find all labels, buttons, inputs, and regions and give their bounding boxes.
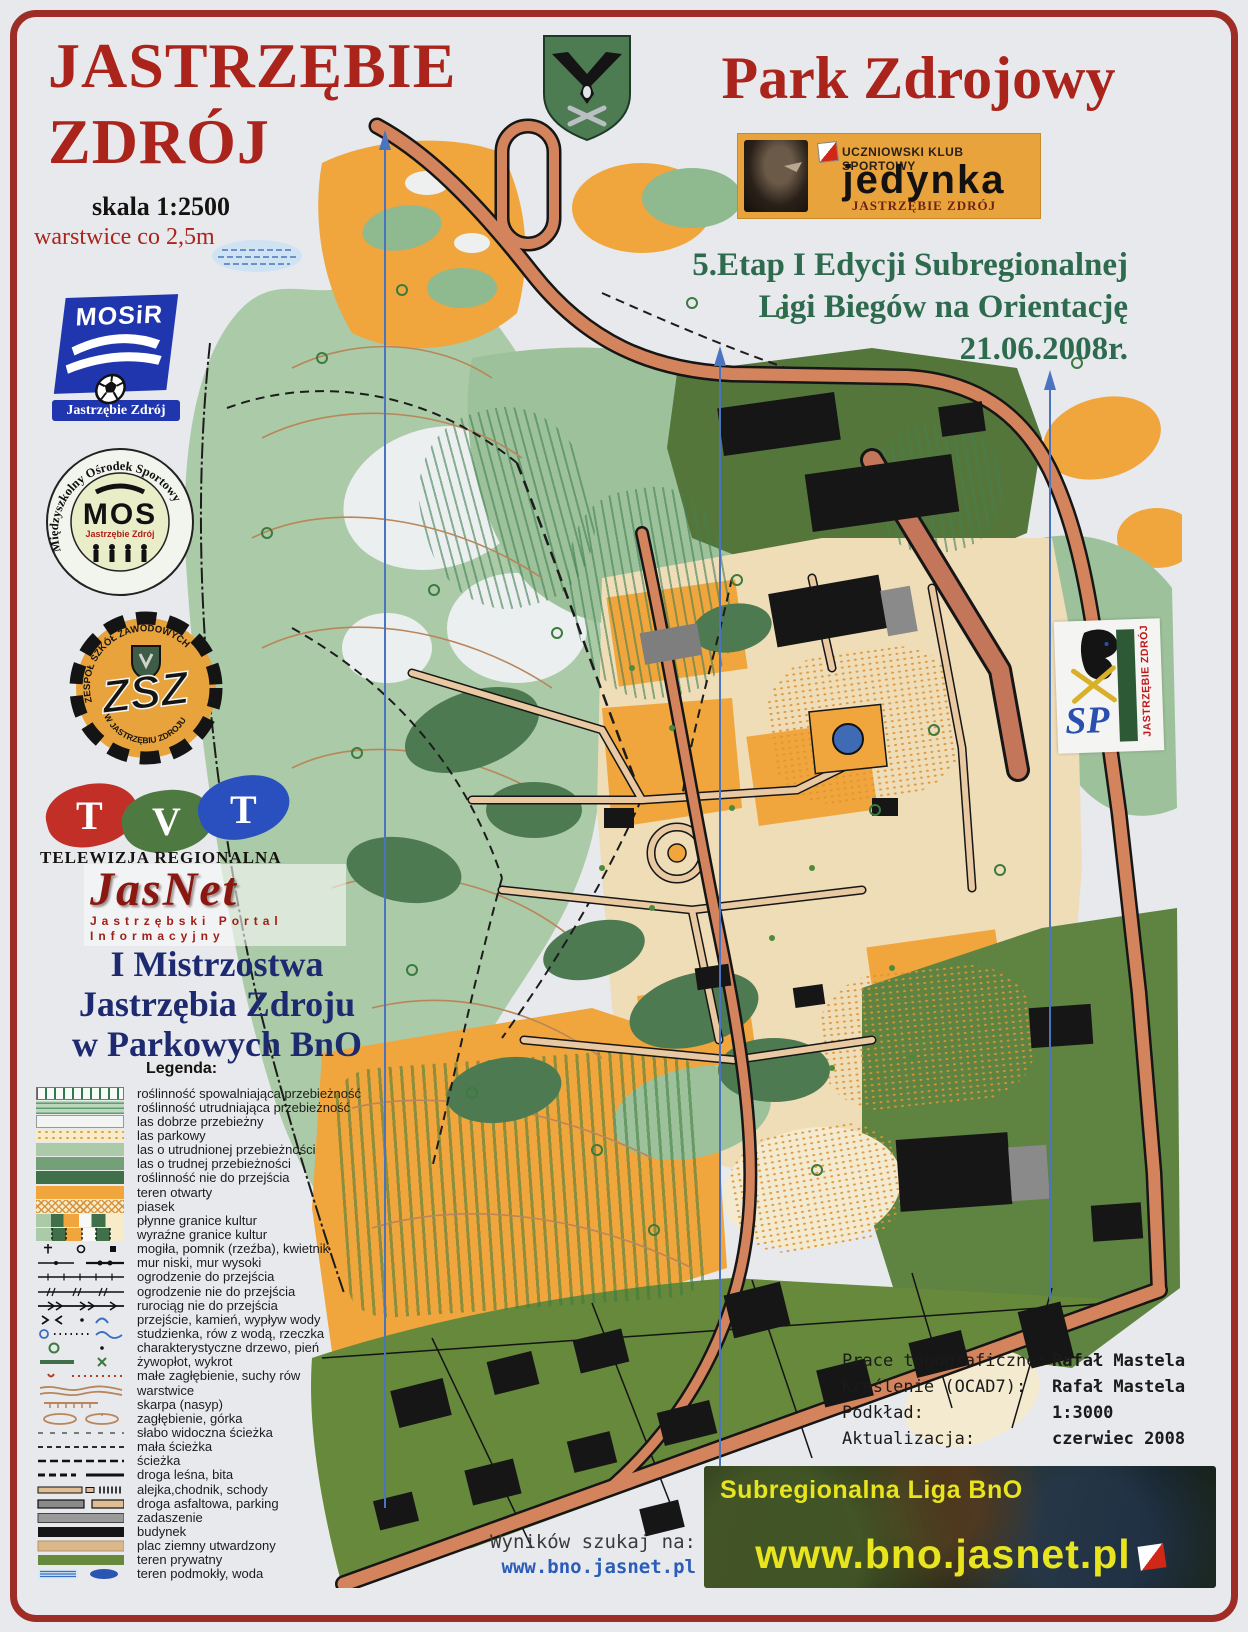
legend-label: las o utrudnionej przebieżności	[137, 1143, 316, 1156]
legend-label: ogrodzenie do przejścia	[137, 1270, 274, 1283]
city-crest-shield-icon	[538, 32, 636, 144]
legend-label: roślinność spowalniająca przebieżność	[137, 1087, 361, 1100]
legend-swatch-runnable-forest	[36, 1115, 124, 1128]
results-note: Wyników szukaj na: www.bno.jasnet.pl	[440, 1530, 696, 1580]
legend-label: małe zagłębienie, suchy rów	[137, 1369, 300, 1382]
legend-swatch-contours	[36, 1384, 124, 1397]
tvt-letter: V	[152, 798, 181, 845]
jasnet-caption-line: Jastrzębski Portal	[90, 914, 340, 929]
legend-label: alejka,chodnik, schody	[137, 1483, 268, 1496]
legend-label: zagłębienie, górka	[137, 1412, 243, 1425]
legend-label: wyraźne granice kultur	[137, 1228, 267, 1241]
credit-value: czerwiec 2008	[1052, 1426, 1185, 1452]
legend-label: mogiła, pomnik (rzeźba), kwietnik	[137, 1242, 329, 1255]
zsz-logo: ZESPÓŁ SZKÓŁ ZAWODOWYCH W JASTRZĘBIU ZDR…	[62, 604, 230, 777]
legend-swatch-path	[36, 1454, 124, 1467]
credit-row: Prace topograficzne:Rafał Mastela	[842, 1348, 1185, 1374]
credit-value: Rafał Mastela	[1052, 1348, 1185, 1374]
legend-swatch-grave-monument-flowerbed	[36, 1242, 124, 1255]
event-line: 21.06.2008r.	[600, 328, 1128, 370]
jasnet-logo: JasNet Jastrzębski Portal Informacyjny	[84, 864, 346, 946]
legend-swatch-asphalt-parking	[36, 1497, 124, 1510]
league-banner: Subregionalna Liga BnO www.bno.jasnet.pl	[704, 1466, 1216, 1588]
legend-label: las o trudnej przebieżności	[137, 1157, 291, 1170]
scanned-orienteering-map-page: JASTRZĘBIE ZDRÓJ skala 1:2500 warstwice …	[0, 0, 1248, 1632]
mosir-emblem: MOSiR	[54, 294, 178, 394]
tvt-letter: T	[76, 792, 103, 839]
mos-logo: Międzyszkolny Ośrodek Sportowy MOS Jastr…	[44, 446, 196, 603]
legend-label: skarpa (nasyp)	[137, 1398, 223, 1411]
legend-label: plac ziemny utwardzony	[137, 1539, 276, 1552]
mos-name: MOS	[83, 498, 157, 531]
hawk-photo	[744, 140, 808, 212]
legend-label: płynne granice kultur	[137, 1214, 257, 1227]
event-line: Ligi Biegów na Orientację	[600, 286, 1128, 328]
event-line: 5.Etap I Edycji Subregionalnej	[600, 244, 1128, 286]
legend-label: piasek	[137, 1200, 175, 1213]
legend-swatch-veg-slow	[36, 1087, 124, 1100]
legend-swatch-sand	[36, 1200, 124, 1213]
sponsor-jedynka-logo: UCZNIOWSKI KLUB SPORTOWY jedynka JASTRZĘ…	[738, 134, 1040, 218]
legend-swatch-tree-stump	[36, 1341, 124, 1354]
credit-label: Aktualizacja:	[842, 1426, 1052, 1452]
credit-label: Prace topograficzne:	[842, 1348, 1052, 1374]
legend-swatch-marsh-water	[36, 1567, 124, 1580]
legend-swatch-difficult-forest	[36, 1157, 124, 1170]
legend-swatch-depression-hill	[36, 1412, 124, 1425]
marsh-lines	[218, 250, 296, 264]
event-title: 5.Etap I Edycji Subregionalnej Ligi Bieg…	[600, 244, 1128, 370]
legend-swatch-private-terrain	[36, 1553, 124, 1566]
map-scale-label: skala 1:2500	[92, 192, 230, 222]
legend-label: roślinność utrudniająca przebieżność	[137, 1101, 350, 1114]
legend-swatch-faint-path	[36, 1426, 124, 1439]
map-title-left: JASTRZĘBIE ZDRÓJ	[48, 28, 456, 180]
legend-label: słabo widoczna ścieżka	[137, 1426, 273, 1439]
legend-swatch-depression-dry-ditch	[36, 1369, 124, 1382]
legend-label: warstwice	[137, 1384, 194, 1397]
championship-title: I Mistrzostwa Jastrzębia Zdroju w Parkow…	[26, 944, 408, 1064]
legend-label: zadaszenie	[137, 1511, 203, 1524]
sp1-logo: SP JASTRZĘBIE ZDRÓJ	[1054, 618, 1165, 754]
sponsor-club-city: JASTRZĘBIE ZDRÓJ	[814, 198, 1034, 214]
legend-swatch-roofing	[36, 1511, 124, 1524]
legend-label: ścieżka	[137, 1454, 180, 1467]
sp1-sp-text: SP	[1064, 698, 1110, 744]
mos-city: Jastrzębie Zdrój	[85, 529, 154, 539]
sponsor-club-name: jedynka	[814, 158, 1034, 203]
legend-label: charakterystyczne drzewo, pień	[137, 1341, 319, 1354]
jasnet-name: JasNet	[90, 866, 340, 914]
banner-url-text: www.bno.jasnet.pl	[755, 1531, 1130, 1577]
credit-value: Rafał Mastela	[1052, 1374, 1185, 1400]
legend-swatch-park-forest	[36, 1129, 124, 1142]
mosir-logo: MOSiR Jastrzębie Zdrój	[52, 296, 182, 421]
legend-label: droga leśna, bita	[137, 1468, 233, 1481]
legend-swatch-veg-hindering	[36, 1101, 124, 1114]
legend-swatch-fence-passable	[36, 1270, 124, 1283]
legend-swatch-crossing-stone-spring	[36, 1313, 124, 1326]
zsz-name: ZSZ	[97, 661, 193, 724]
legend-label: droga asfaltowa, parking	[137, 1497, 279, 1510]
legend-swatch-small-path	[36, 1440, 124, 1453]
results-label: Wyników szukaj na:	[440, 1530, 696, 1555]
legend-swatch-pipeline	[36, 1299, 124, 1312]
legend-label: przejście, kamień, wypływ wody	[137, 1313, 321, 1326]
title-line: ZDRÓJ	[48, 104, 456, 180]
city-crest	[538, 32, 636, 149]
legend-label: roślinność nie do przejścia	[137, 1171, 289, 1184]
legend-swatch-open-terrain	[36, 1186, 124, 1199]
legend-swatch-well-ditch-stream	[36, 1327, 124, 1340]
results-url: www.bno.jasnet.pl	[440, 1555, 696, 1580]
title-line: JASTRZĘBIE	[48, 28, 456, 104]
credit-row: Aktualizacja:czerwiec 2008	[842, 1426, 1185, 1452]
legend-label: budynek	[137, 1525, 186, 1538]
orienteering-flag-icon	[1137, 1543, 1166, 1570]
map-credits: Prace topograficzne:Rafał Mastela Kreśle…	[842, 1348, 1185, 1452]
zsz-emblem: ZESPÓŁ SZKÓŁ ZAWODOWYCH W JASTRZĘBIU ZDR…	[62, 604, 230, 772]
legend-swatch-alley-sidewalk-stairs	[36, 1483, 124, 1496]
credit-row: Podkład:1:3000	[842, 1400, 1185, 1426]
legend-label: studzienka, rów z wodą, rzeczka	[137, 1327, 324, 1340]
legend-swatch-hedge-windthrow	[36, 1355, 124, 1368]
credit-label: Kreślenie (OCAD7):	[842, 1374, 1052, 1400]
legend-title: Legenda:	[146, 1060, 381, 1078]
credit-row: Kreślenie (OCAD7):Rafał Mastela	[842, 1374, 1185, 1400]
credit-value: 1:3000	[1052, 1400, 1113, 1426]
legend-label: teren podmokły, woda	[137, 1567, 263, 1580]
soccer-ball-icon	[91, 371, 129, 406]
legend-label: mur niski, mur wysoki	[137, 1256, 261, 1269]
mos-emblem: Międzyszkolny Ośrodek Sportowy MOS Jastr…	[44, 446, 196, 598]
legend-label: mała ścieżka	[137, 1440, 212, 1453]
legend-swatch-hard-ground	[36, 1539, 124, 1552]
legend-label: teren otwarty	[137, 1186, 212, 1199]
legend-label: żywopłot, wykrot	[137, 1355, 232, 1368]
legend-swatch-fence-impassable	[36, 1285, 124, 1298]
legend-label: las parkowy	[137, 1129, 206, 1142]
tvt-letter: T	[230, 786, 257, 833]
jasnet-caption-line: Informacyjny	[90, 929, 340, 944]
legend-swatch-scarp	[36, 1398, 124, 1411]
legend-swatch-sharp-culture-border	[36, 1228, 124, 1241]
championship-line: I Mistrzostwa	[26, 944, 408, 984]
championship-line: w Parkowych BnO	[26, 1024, 408, 1064]
legend-swatch-impassable-vegetation	[36, 1171, 124, 1184]
legend-swatch-fluid-culture-border	[36, 1214, 124, 1227]
contour-interval-label: warstwice co 2,5m	[34, 224, 215, 251]
map-legend: Legenda: roślinność spowalniająca przebi…	[36, 1060, 381, 1581]
legend-swatch-walls	[36, 1256, 124, 1269]
sp1-one-bar	[1116, 629, 1138, 742]
map-title-right: Park Zdrojowy	[656, 44, 1181, 113]
legend-swatch-slow-forest	[36, 1143, 124, 1156]
banner-url: www.bno.jasnet.pl	[704, 1531, 1216, 1578]
pond	[809, 704, 887, 773]
legend-label: las dobrze przebieżny	[137, 1115, 263, 1128]
banner-title: Subregionalna Liga BnO	[720, 1476, 1023, 1505]
legend-swatch-building	[36, 1525, 124, 1538]
credit-label: Podkład:	[842, 1400, 1052, 1426]
legend-label: rurociąg nie do przejścia	[137, 1299, 278, 1312]
legend-label: teren prywatny	[137, 1553, 222, 1566]
legend-swatch-forest-road	[36, 1468, 124, 1481]
championship-line: Jastrzębia Zdroju	[26, 984, 408, 1024]
legend-label: ogrodzenie nie do przejścia	[137, 1285, 295, 1298]
